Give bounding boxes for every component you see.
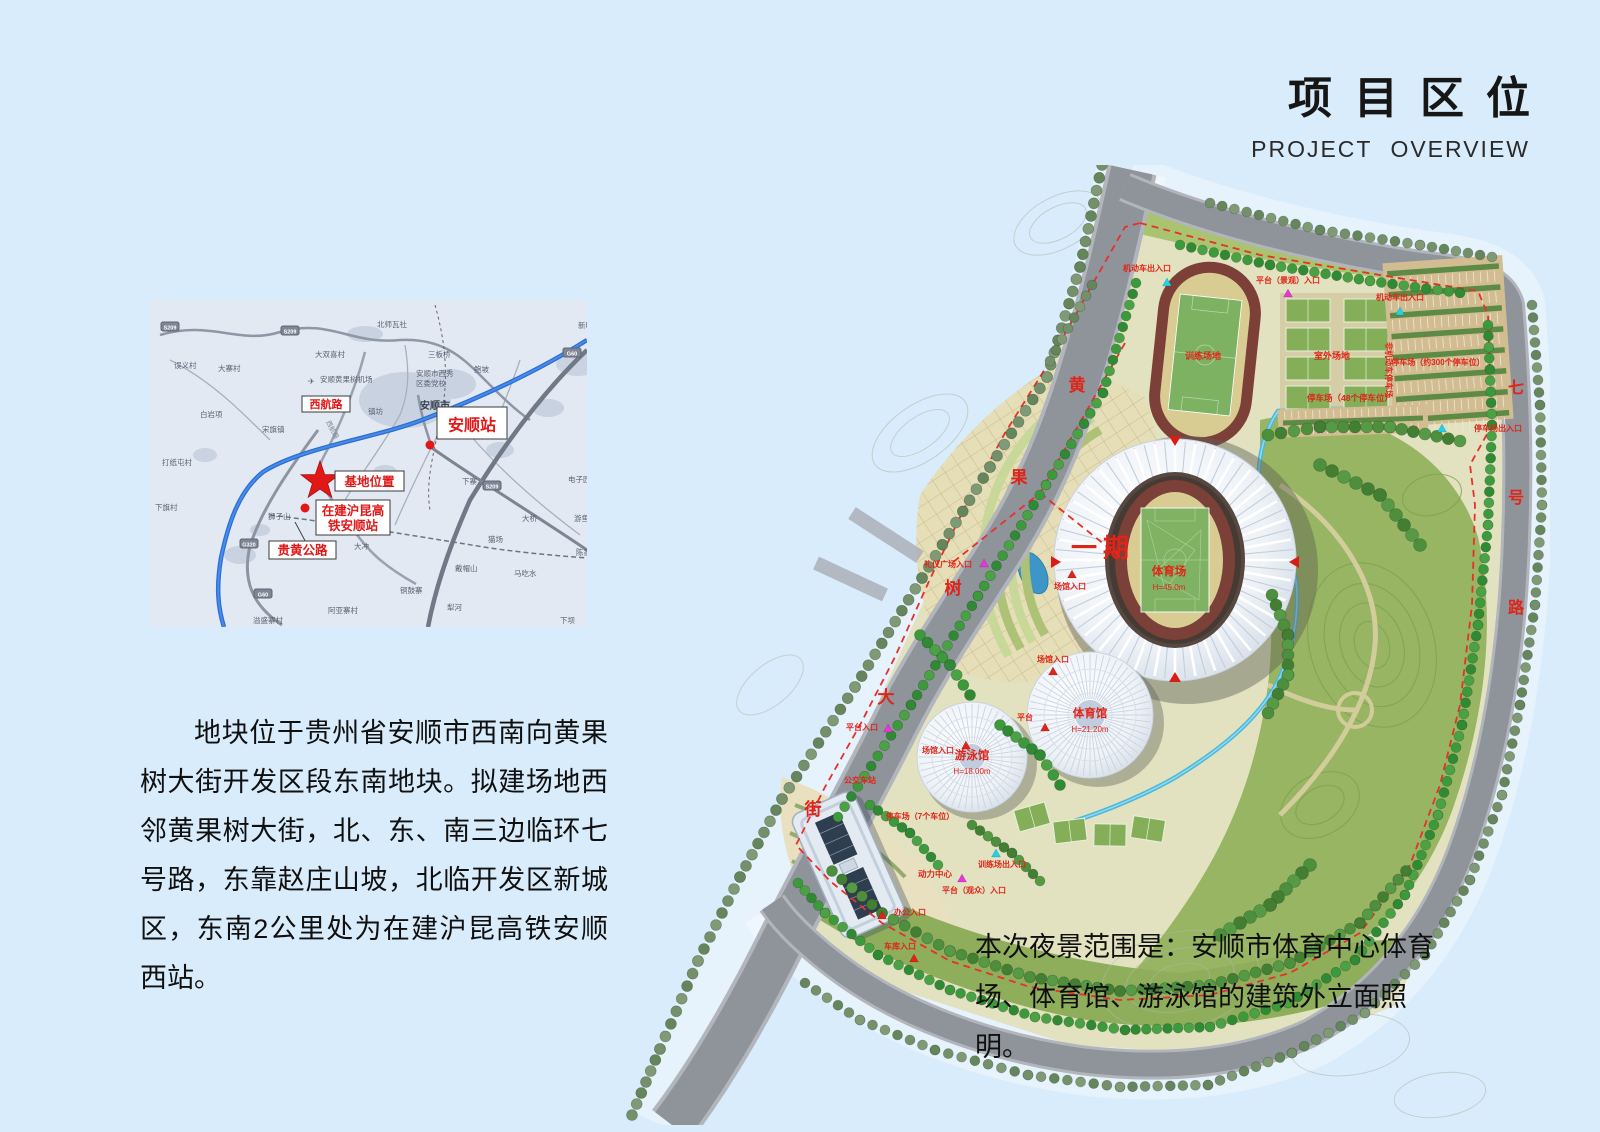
map-place-label: 下坝 [560,616,575,625]
venue-name: 体育场 [1152,564,1187,578]
entrance-label: 停车场出入口 [1474,423,1522,433]
area-label: 训练场地 [1185,350,1221,361]
ring-road-char: 七 [1508,379,1524,397]
page-subtitle: PROJECT OVERVIEW [1251,136,1530,163]
west-road-stubs [816,513,920,595]
entrance-label: 平台 [1017,712,1033,722]
street-name-char: 大 [878,687,895,707]
entrance-label: 场馆入口 [1037,654,1069,664]
entrance-label: 场馆入口 [922,745,954,755]
svg-text:G60: G60 [258,592,268,598]
map-place-label: 鲍坡 [474,364,489,374]
venue-height: H=45.0m [1153,583,1186,592]
svg-text:在建沪昆高: 在建沪昆高 [322,503,385,518]
map-place-label: 大冲 [354,541,369,551]
entrance-label: 机动车出入口 [1376,292,1424,302]
map-place-label: 镇坊 [368,406,383,416]
map-place-label: 下寨 [462,476,477,486]
map-place-label: 陈家山脚 [576,547,587,557]
map-place-label: 下旗村 [155,502,178,512]
svg-text:G320: G320 [242,542,255,548]
map-place-label: 新明村 [578,320,587,330]
station-dot [301,504,310,513]
map-place-label: 游鱼井 [574,513,587,523]
map-place-label: 犁河 [447,603,462,612]
area-label: 室外场地 [1314,350,1350,361]
phase-label: 一期 [1071,533,1135,563]
map-place-label: 北师瓦社 [377,319,407,329]
entrance-label: 平台入口 [846,722,878,732]
map-place-label: 安顺黄果树机场 [320,374,373,384]
map-place-label: 三板桥 [428,349,451,359]
entrance-label: 平台（景观）入口 [1256,275,1320,285]
entrance-label: 车库入口 [884,941,916,951]
map-place-label: 大寨村 [218,363,241,373]
street-name-char: 树 [945,579,962,598]
svg-text:S209: S209 [486,484,499,490]
page-title: 项目区位 [1251,62,1552,126]
map-place-label: 大桥 [522,513,537,523]
map-place-label: 马吃水 [514,568,537,578]
map-place-label: 大双喜村 [315,349,345,359]
entrance-label: 机动车出入口 [1123,263,1171,273]
site-description-text: 地块位于贵州省安顺市西南向黄果树大街开发区段东南地块。拟建场地西邻黄果树大街，北… [140,709,608,1003]
ring-road-char: 路 [1508,598,1525,617]
map-place-label: 白岩项 [200,409,223,419]
map-place-label: 阿亚寨村 [328,605,358,615]
location-map: S209S209G60S209G320G60 北师瓦社新明村大双喜村三板桥误义村… [150,300,587,627]
station-dot [426,441,435,450]
area-label: 停车场（约300个停车位） [1391,357,1484,367]
map-place-label: 区委党校 [416,378,446,388]
svg-text:铁安顺站: 铁安顺站 [328,518,379,533]
svg-text:基地位置: 基地位置 [343,474,395,489]
map-place-label: 电子园 [568,474,587,484]
svg-text:贵黄公路: 贵黄公路 [277,542,328,557]
ring-road-char: 号 [1508,489,1524,507]
map-place-label: 戴帽山 [455,563,478,573]
map-place-label: 打纸屯村 [162,457,192,467]
night-scope-text: 本次夜景范围是：安顺市体育中心体育场、体育馆、游泳馆的建筑外立面照明。 [975,922,1455,1072]
entrance-label: 公交车站 [844,775,876,785]
venue-name: 游泳馆 [955,748,990,762]
map-place-label: 狮子山 [268,511,291,521]
map-place-label: 铜鼓寨 [400,585,423,595]
svg-text:✈: ✈ [308,377,315,386]
map-place-label: 安顺市西秀 [416,368,454,378]
venue-height: H=18.00m [953,767,990,776]
svg-text:S209: S209 [284,329,297,335]
entrance-label: 礼仪广场入口 [924,559,972,569]
slide-page: { "header": { "title": "项目区位", "subtitle… [0,0,1600,1132]
area-label: 非机动车停车场 [1384,342,1394,398]
map-place-label: 宋旗镇 [262,424,285,434]
map-place-label: 溢盛寨村 [253,615,283,625]
map-place-label: 误义村 [174,360,197,370]
street-name-char: 果 [1011,468,1028,487]
svg-text:S209: S209 [164,325,177,331]
venue-name: 体育馆 [1073,706,1108,720]
street-name-char: 黄 [1069,375,1086,395]
area-label: 停车场（7个车位） [886,811,954,821]
venue-height: H=21.20m [1071,725,1108,734]
map-place-label: 猫场 [488,534,503,544]
entrance-label: 平台（观众）入口 [942,885,1006,895]
svg-text:西航路: 西航路 [310,397,344,411]
entrance-label: 办公入口 [894,907,926,917]
header: 项目区位 PROJECT OVERVIEW [1251,62,1530,163]
entrance-label: 场馆入口 [1054,581,1086,591]
svg-text:安顺站: 安顺站 [448,416,496,435]
area-label: 停车场（48个停车位） [1307,393,1393,403]
entrance-label: 训练场出入口 [978,859,1026,869]
street-name-char: 街 [804,799,822,819]
svg-text:G60: G60 [567,351,577,357]
area-label: 动力中心 [918,869,953,879]
